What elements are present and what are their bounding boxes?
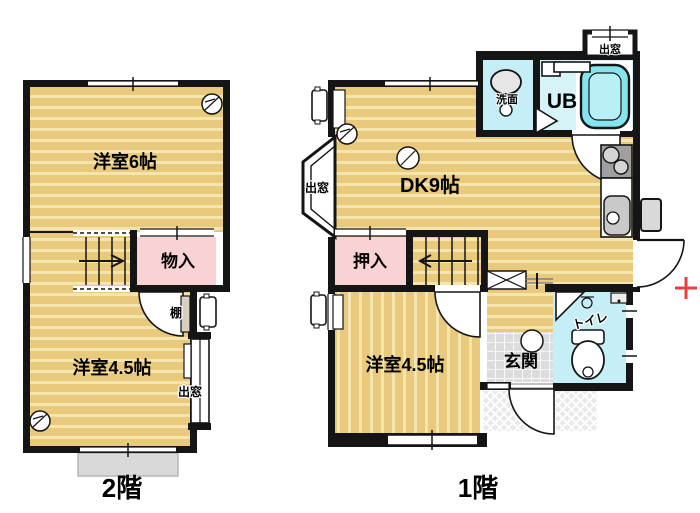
floor1-light-dk-icon [397,147,419,169]
floor2-baywindow-label: 出窓 [178,384,202,399]
floor1-wall-washroom-left [476,51,483,137]
floor2-ac-unit [200,294,216,330]
floor1-closet-label: 押入 [353,251,387,271]
floor1-wall-stairs-top [406,230,488,237]
floor2-wall-right-upper [223,80,230,292]
floor2-shelf [181,296,190,332]
floor2-storage-label: 物入 [161,251,195,271]
floor1-stove [601,145,632,178]
floor1-entrance-label: 玄関 [504,351,538,371]
floor2-window-left [23,237,30,283]
floor1-ac-unit-top [312,87,327,124]
entrance-cross-marker [675,277,697,299]
floor1-window-entrance [487,383,509,389]
floor2-light-room45-icon [30,411,50,431]
floor1-window-left-upper [333,90,345,128]
floor1-shoe-cabinet [487,271,526,289]
floor2-room6-label: 洋室6帖 [93,151,157,172]
floor1-washroom-label: 洗面 [496,92,518,106]
floor1-bath-label: UB [547,90,577,113]
floor1-hall-floor [487,285,553,332]
floor2-room45-label: 洋室4.5帖 [72,357,151,378]
floor2-plan: 洋室6帖 物入 棚 出窓 洋室4.5帖 2階 [23,77,230,503]
floor2-wall-storage-bottom [130,285,230,292]
floor1-light-entrance-icon [521,330,543,352]
floor1-wall-toilet-top [545,284,633,292]
floor1-ac-unit-left [311,292,326,328]
floor1-light-dk-left-icon [337,124,357,144]
floor1-room45-label: 洋室4.5帖 [365,354,444,375]
floor1-back-door [637,240,684,287]
floor2-shelf-label: 棚 [170,305,182,320]
floor1-baywindow-top-label: 出窓 [599,42,621,56]
floor2-wall-stair-divider [130,230,137,292]
floor1-window-left-lower [328,294,343,330]
floorplan-canvas: 洋室6帖 物入 棚 出窓 洋室4.5帖 2階 [0,0,700,513]
floor1-baywindow-left-label: 出窓 [305,180,329,195]
floor1-wall-left-lower [328,237,335,447]
floorplan-svg: 洋室6帖 物入 棚 出窓 洋室4.5帖 2階 [0,0,700,513]
floor2-light-room6-icon [202,94,222,114]
floor1-title: 1階 [458,473,498,503]
floor1-dk-label: DK9帖 [400,174,460,197]
floor1-wall-closet-stairs-divider [406,230,413,292]
floor1-plan: DK9帖 出窓 出窓 洗面 UB 押入 洋室4.5帖 玄関 トイレ 1階 [303,26,697,503]
floor1-wall-toilet-bottom [553,383,633,391]
floor1-kitchen-sink [601,178,632,237]
floor1-wall-closet-bottom [328,285,435,292]
floor2-title: 2階 [102,473,142,503]
